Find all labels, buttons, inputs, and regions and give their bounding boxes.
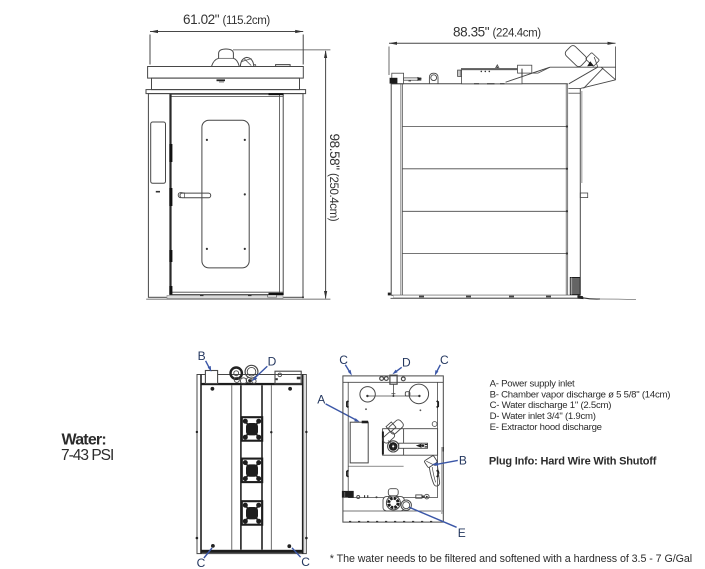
svg-text:D: D xyxy=(268,354,277,368)
svg-text:98.58" (250.4cm): 98.58" (250.4cm) xyxy=(327,134,342,222)
svg-text:B: B xyxy=(459,453,467,467)
svg-text:A- Power supply inlet: A- Power supply inlet xyxy=(490,379,575,390)
svg-text:C: C xyxy=(440,353,449,367)
svg-text:D- Water inlet 3/4" (1.9cm): D- Water inlet 3/4" (1.9cm) xyxy=(490,411,596,422)
svg-text:7-43 PSI: 7-43 PSI xyxy=(61,447,113,464)
svg-text:Plug Info: Hard Wire With Shut: Plug Info: Hard Wire With Shutoff xyxy=(489,455,657,467)
svg-text:B- Chamber vapor discharge ø 5: B- Chamber vapor discharge ø 5 5/8" (14c… xyxy=(490,389,671,400)
svg-text:E- Extractor hood discharge: E- Extractor hood discharge xyxy=(490,422,602,433)
svg-text:61.02" (115.2cm): 61.02" (115.2cm) xyxy=(183,12,270,27)
svg-text:B: B xyxy=(198,349,206,363)
svg-text:* The water needs to be filter: * The water needs to be filtered and sof… xyxy=(330,553,692,565)
svg-text:C- Water discharge 1" (2.5cm): C- Water discharge 1" (2.5cm) xyxy=(490,400,612,411)
svg-text:E: E xyxy=(458,526,466,540)
svg-text:D: D xyxy=(402,355,411,369)
svg-text:88.35" (224.4cm): 88.35" (224.4cm) xyxy=(453,25,541,40)
svg-text:C: C xyxy=(301,555,310,569)
svg-text:A: A xyxy=(317,392,325,406)
svg-text:Water:: Water: xyxy=(62,432,106,449)
svg-text:C: C xyxy=(339,353,348,367)
